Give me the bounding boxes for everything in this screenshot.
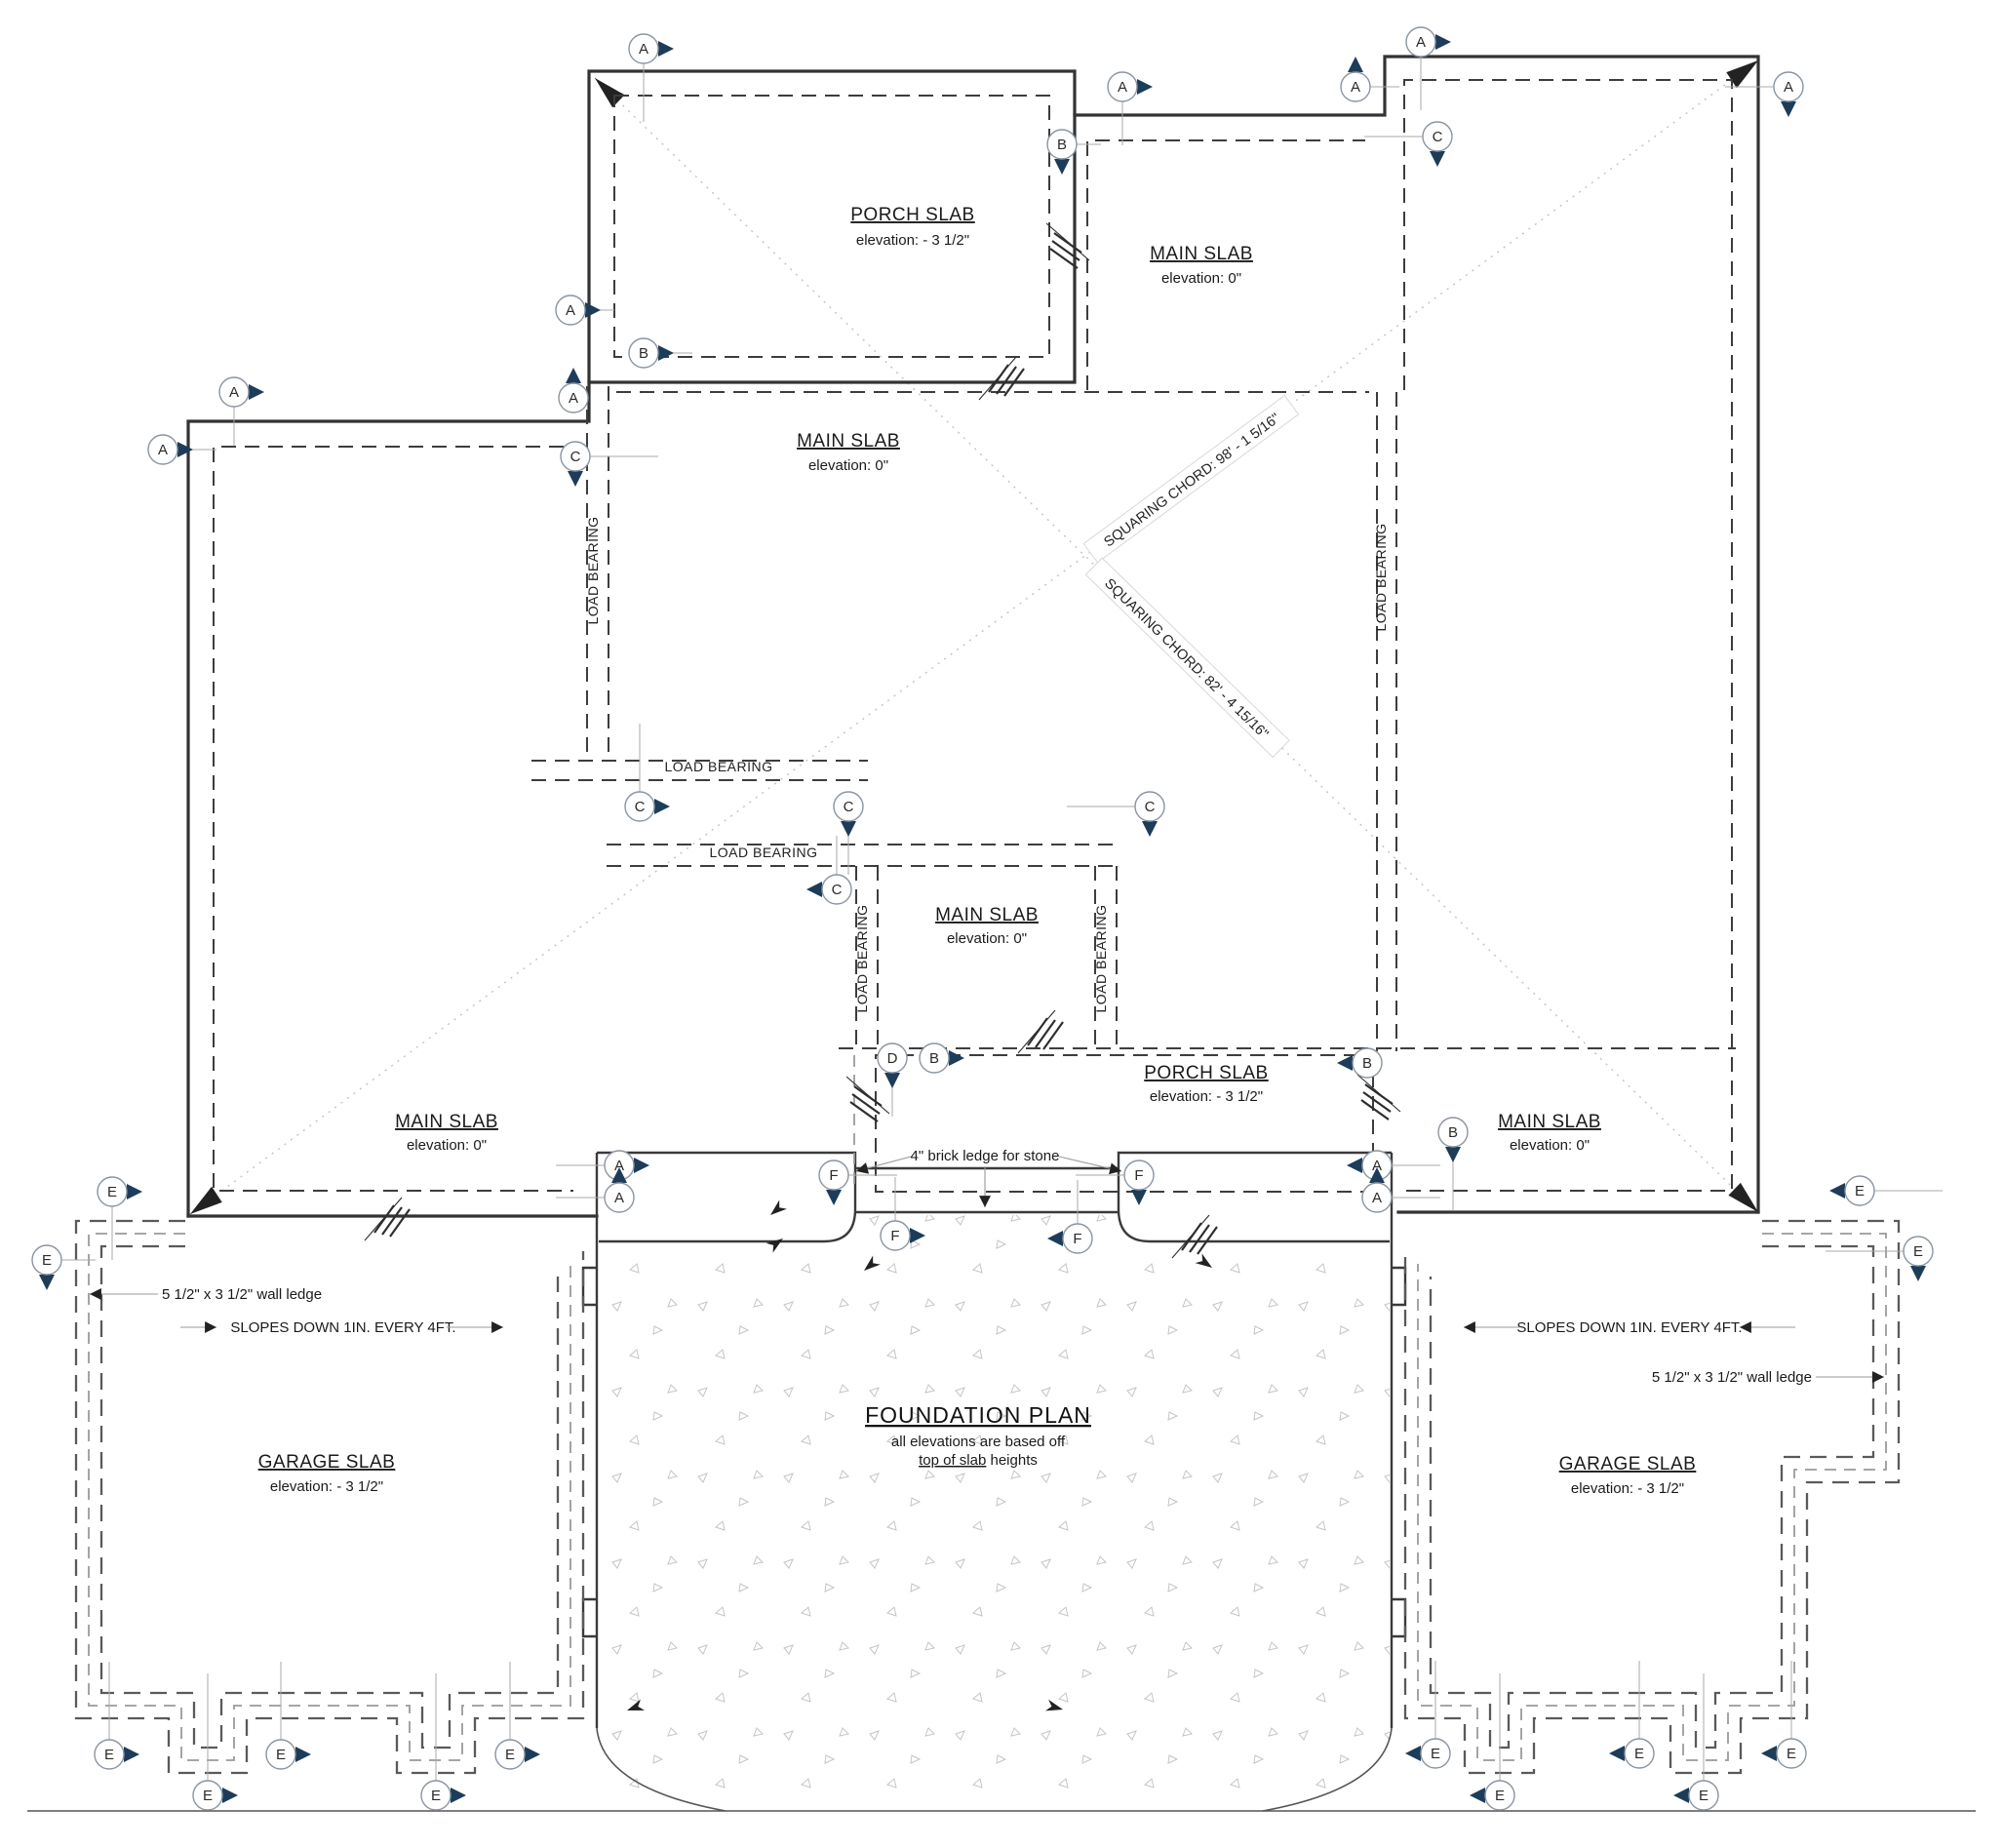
label-main-slab-top: MAIN SLAB elevation: 0" [1150, 244, 1253, 287]
svg-text:A: A [639, 41, 648, 58]
svg-text:elevation: 0": elevation: 0" [407, 1137, 487, 1154]
label-porch-slab-center: PORCH SLAB elevation: - 3 1/2" [1144, 1063, 1268, 1105]
section-marker-e: E [1829, 1176, 1943, 1205]
section-marker-b: B [629, 338, 692, 368]
section-marker-e: E [1826, 1237, 1933, 1281]
squaring-chord-98-text: SQUARING CHORD: 98' - 1 5/16" [1101, 411, 1282, 550]
svg-text:F: F [829, 1167, 838, 1184]
subtitle-line2: top of slab heights [919, 1452, 1038, 1469]
load-bearing-label: LOAD BEARING [709, 845, 817, 860]
svg-text:E: E [107, 1184, 117, 1200]
section-marker-e: E [495, 1662, 540, 1769]
section-marker-a: A [559, 368, 588, 413]
svg-text:MAIN SLAB: MAIN SLAB [395, 1112, 498, 1132]
section-marker-e: E [266, 1662, 311, 1769]
svg-text:C: C [1433, 129, 1443, 145]
svg-text:E: E [42, 1252, 52, 1269]
porch-slab-tl-outline [589, 71, 1075, 382]
foundation-plan-drawing: SQUARING CHORD: 98' - 1 5/16" SQUARING C… [0, 0, 2003, 1848]
svg-text:C: C [844, 799, 854, 815]
svg-text:elevation: - 3 1/2": elevation: - 3 1/2" [270, 1478, 383, 1495]
svg-text:B: B [1057, 137, 1067, 153]
svg-text:B: B [639, 345, 648, 362]
svg-text:elevation: 0": elevation: 0" [947, 930, 1027, 947]
label-main-slab-right: MAIN SLAB elevation: 0" [1498, 1112, 1601, 1154]
svg-text:F: F [1073, 1231, 1081, 1247]
svg-text:A: A [566, 302, 575, 319]
svg-text:E: E [1855, 1183, 1865, 1199]
section-marker-a: A [148, 435, 216, 464]
svg-text:elevation: - 3 1/2": elevation: - 3 1/2" [1150, 1088, 1263, 1105]
svg-text:SLOPES DOWN 1IN. EVERY 4FT.: SLOPES DOWN 1IN. EVERY 4FT. [1516, 1319, 1742, 1336]
svg-text:A: A [1784, 79, 1793, 96]
svg-text:all elevations are based off: all elevations are based off [891, 1434, 1066, 1450]
section-marker-c: C [1067, 792, 1164, 837]
svg-text:A: A [229, 384, 239, 401]
label-garage-slab-left: GARAGE SLAB elevation: - 3 1/2" [258, 1452, 396, 1495]
svg-text:D: D [887, 1050, 898, 1067]
garage-right-outline [1405, 1221, 1899, 1773]
svg-text:E: E [505, 1747, 515, 1763]
svg-text:E: E [1787, 1746, 1796, 1762]
section-marker-a: A [629, 34, 674, 122]
load-bearing-label: LOAD BEARING [664, 759, 772, 774]
svg-text:C: C [635, 799, 646, 815]
svg-text:F: F [890, 1228, 899, 1244]
svg-text:B: B [1362, 1055, 1372, 1072]
svg-text:A: A [158, 442, 168, 458]
section-marker-a: A [1362, 1167, 1440, 1212]
svg-text:MAIN SLAB: MAIN SLAB [1498, 1112, 1601, 1132]
svg-text:E: E [1699, 1788, 1708, 1804]
annotation-wall-ledge-right: 5 1/2" x 3 1/2" wall ledge [1652, 1369, 1884, 1386]
svg-text:A: A [1118, 79, 1127, 96]
svg-text:A: A [614, 1190, 624, 1206]
svg-text:GARAGE SLAB: GARAGE SLAB [1559, 1454, 1697, 1474]
section-marker-a: A [1341, 57, 1399, 101]
section-marker-e: E [1405, 1661, 1450, 1768]
svg-text:B: B [1448, 1124, 1458, 1141]
annotation-wall-ledge-left: 5 1/2" x 3 1/2" wall ledge [90, 1286, 322, 1303]
svg-text:A: A [1372, 1190, 1382, 1206]
section-marker-a: A [556, 1151, 649, 1180]
section-marker-a: A [1108, 72, 1153, 145]
section-marker-a: A [1347, 1151, 1440, 1180]
load-bearing-label: LOAD BEARING [1373, 523, 1389, 631]
section-marker-e: E [98, 1177, 142, 1260]
section-marker-b: B [1337, 1048, 1382, 1078]
svg-text:E: E [1913, 1243, 1923, 1260]
svg-text:GARAGE SLAB: GARAGE SLAB [258, 1452, 396, 1473]
svg-text:F: F [1134, 1167, 1143, 1184]
squaring-chord-98 [190, 60, 1758, 1214]
label-porch-slab-tl: PORCH SLAB elevation: - 3 1/2" [850, 205, 974, 249]
svg-text:C: C [832, 882, 843, 898]
section-marker-e: E [1609, 1661, 1654, 1768]
svg-text:SLOPES DOWN 1IN. EVERY 4FT.: SLOPES DOWN 1IN. EVERY 4FT. [230, 1319, 455, 1336]
svg-text:E: E [1495, 1788, 1505, 1804]
svg-text:MAIN SLAB: MAIN SLAB [935, 905, 1039, 925]
svg-text:C: C [1145, 799, 1156, 815]
svg-text:elevation: - 3 1/2": elevation: - 3 1/2" [1571, 1480, 1684, 1497]
svg-text:5 1/2" x 3 1/2" wall ledge: 5 1/2" x 3 1/2" wall ledge [1652, 1369, 1812, 1386]
squaring-chord-82-text: SQUARING CHORD: 82' - 4 15/16" [1101, 575, 1271, 742]
svg-text:B: B [929, 1050, 939, 1067]
svg-text:PORCH SLAB: PORCH SLAB [850, 205, 974, 225]
section-marker-a: A [219, 377, 264, 446]
svg-text:4" brick ledge for stone: 4" brick ledge for stone [911, 1148, 1060, 1164]
driveway-stipple [599, 1215, 1390, 1806]
svg-text:elevation: 0": elevation: 0" [1161, 270, 1241, 287]
section-marker-a: A [1406, 27, 1451, 110]
svg-text:elevation: 0": elevation: 0" [808, 457, 888, 474]
svg-text:elevation: - 3 1/2": elevation: - 3 1/2" [856, 232, 969, 249]
section-marker-e: E [32, 1245, 96, 1290]
section-marker-e: E [1761, 1661, 1806, 1768]
label-main-slab-left: MAIN SLAB elevation: 0" [395, 1112, 498, 1154]
load-bearing-label: LOAD BEARING [585, 516, 601, 624]
svg-text:MAIN SLAB: MAIN SLAB [797, 431, 900, 452]
section-marker-a: A [556, 295, 614, 325]
svg-text:A: A [569, 390, 578, 407]
label-main-slab-center: MAIN SLAB elevation: 0" [935, 905, 1039, 947]
svg-text:E: E [203, 1788, 213, 1804]
svg-text:E: E [276, 1747, 286, 1763]
svg-text:E: E [1431, 1746, 1440, 1762]
section-marker-c: C [1364, 122, 1452, 167]
label-main-slab-upper: MAIN SLAB elevation: 0" [797, 431, 900, 474]
svg-text:A: A [1351, 79, 1360, 96]
section-marker-c: C [625, 724, 670, 821]
svg-text:elevation: 0": elevation: 0" [1510, 1137, 1590, 1154]
dashed-footing-lines [214, 80, 1736, 1192]
squaring-chord-82-label: SQUARING CHORD: 82' - 4 15/16" [1085, 558, 1289, 757]
svg-text:PORCH SLAB: PORCH SLAB [1144, 1063, 1268, 1083]
load-bearing-label: LOAD BEARING [854, 904, 870, 1012]
foundation-plan-page: SQUARING CHORD: 98' - 1 5/16" SQUARING C… [0, 0, 2003, 1848]
label-garage-slab-right: GARAGE SLAB elevation: - 3 1/2" [1559, 1454, 1697, 1497]
svg-text:C: C [570, 449, 581, 465]
squaring-chord-98-label: SQUARING CHORD: 98' - 1 5/16" [1083, 396, 1298, 563]
svg-text:FOUNDATION PLAN: FOUNDATION PLAN [865, 1402, 1091, 1428]
section-marker-a: A [556, 1167, 634, 1212]
annotation-slopes-right: SLOPES DOWN 1IN. EVERY 4FT. [1464, 1319, 1795, 1336]
annotation-brick-ledge: 4" brick ledge for stone [856, 1148, 1121, 1207]
svg-text:5 1/2" x 3 1/2" wall ledge: 5 1/2" x 3 1/2" wall ledge [162, 1286, 322, 1303]
svg-text:E: E [1634, 1746, 1644, 1762]
section-marker-c: C [834, 792, 863, 875]
annotation-slopes-left: SLOPES DOWN 1IN. EVERY 4FT. [180, 1319, 503, 1336]
section-marker-b: B [1438, 1118, 1468, 1210]
section-marker-d: D [878, 1043, 907, 1117]
svg-text:E: E [431, 1788, 441, 1804]
svg-text:A: A [1416, 34, 1426, 51]
svg-text:E: E [104, 1747, 114, 1763]
load-bearing-label: LOAD BEARING [1093, 904, 1109, 1012]
svg-text:MAIN SLAB: MAIN SLAB [1150, 244, 1253, 264]
garage-left-outline [76, 1221, 583, 1773]
